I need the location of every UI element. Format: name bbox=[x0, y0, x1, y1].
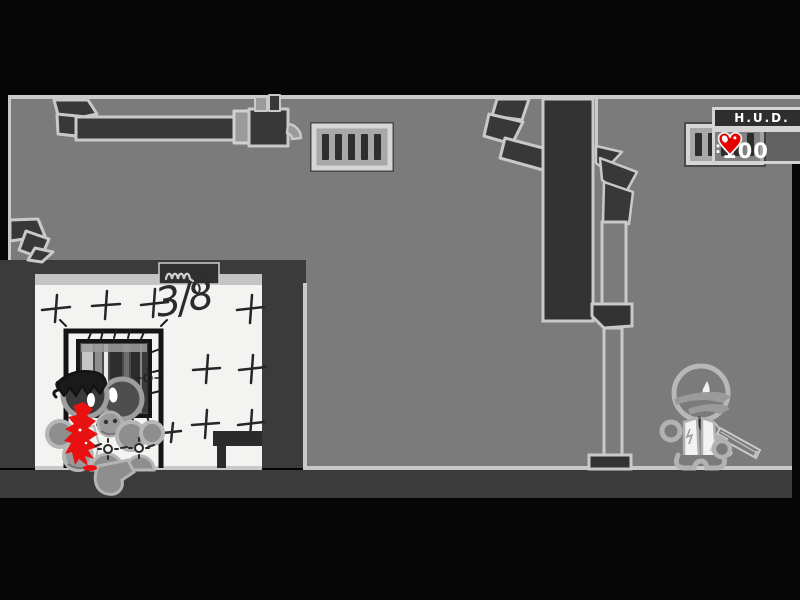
left-hand bbox=[662, 422, 680, 440]
game-viewport[interactable]: 3/8 bbox=[0, 0, 800, 600]
hud-title: H.U.D. bbox=[712, 107, 800, 129]
wall-vent-grille-icon bbox=[311, 123, 393, 171]
ceiling-line bbox=[8, 95, 800, 99]
hud-title-label: H.U.D. bbox=[734, 111, 789, 125]
standpipe bbox=[604, 328, 622, 456]
heart-icon bbox=[716, 132, 744, 158]
kill-count-note: 3/8 bbox=[152, 272, 216, 327]
dark-column bbox=[543, 99, 593, 321]
game-scene[interactable]: 3/8 bbox=[0, 0, 800, 600]
room-lintel bbox=[35, 274, 262, 285]
room-right-wall bbox=[262, 260, 306, 468]
right-hand bbox=[714, 441, 730, 457]
hud-health-panel: : 100 bbox=[712, 129, 800, 164]
pipe-foot bbox=[589, 455, 631, 469]
wall-corner-line bbox=[303, 283, 307, 468]
